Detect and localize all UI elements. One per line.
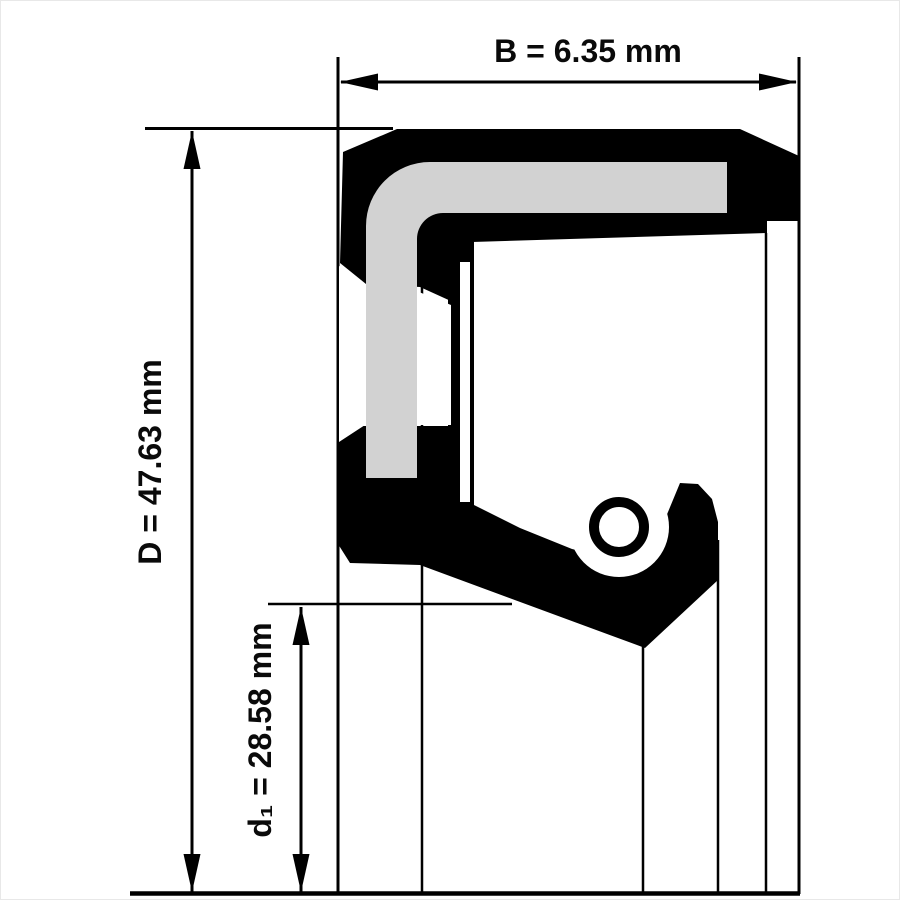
right-gap	[419, 292, 451, 425]
arrow-up-icon	[293, 607, 310, 645]
wall-gap	[460, 262, 470, 502]
spring-pocket	[569, 477, 669, 577]
dimension-b-label: B = 6.35 mm	[494, 33, 682, 69]
dimension-d1-inner	[293, 607, 310, 892]
dimension-d-label: D = 47.63 mm	[132, 359, 168, 564]
arrow-left-icon	[340, 74, 378, 91]
dimension-d1-label: d₁ = 28.58 mm	[242, 622, 278, 837]
arrow-down-icon	[184, 854, 201, 892]
seal-dimension-diagram: B = 6.35 mm D = 47.63 mm d₁ = 28.58 mm	[0, 0, 900, 900]
diagram-canvas: B = 6.35 mm D = 47.63 mm d₁ = 28.58 mm	[0, 0, 900, 900]
dimension-b	[340, 74, 797, 91]
dimension-d-outer	[184, 131, 201, 892]
arrow-up-icon	[184, 131, 201, 169]
arrow-down-icon	[293, 854, 310, 892]
arrow-right-icon	[759, 74, 797, 91]
left-gap	[339, 266, 365, 442]
